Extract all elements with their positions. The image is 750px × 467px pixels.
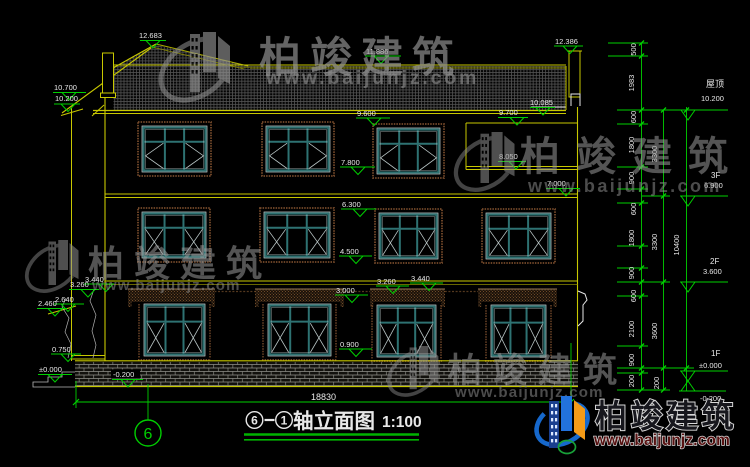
svg-text:1800: 1800 (627, 230, 636, 247)
svg-text:柏竣建筑: 柏竣建筑 (520, 135, 744, 179)
svg-text:1F: 1F (711, 349, 720, 358)
svg-text:4.500: 4.500 (340, 247, 359, 256)
svg-text:1983: 1983 (627, 75, 636, 92)
svg-text:www.baijunjz.com: www.baijunjz.com (593, 432, 730, 449)
svg-text:7.800: 7.800 (341, 158, 360, 167)
svg-text:2.460: 2.460 (38, 299, 57, 308)
svg-text:6.300: 6.300 (342, 200, 361, 209)
svg-text:12.683: 12.683 (139, 31, 162, 40)
svg-text:3.260: 3.260 (70, 280, 89, 289)
svg-text:2.640: 2.640 (55, 295, 74, 304)
svg-text:6: 6 (144, 426, 153, 443)
svg-text:200: 200 (652, 377, 661, 390)
svg-text:10.700: 10.700 (54, 83, 77, 92)
svg-text:12.386: 12.386 (555, 37, 578, 46)
svg-text:-0.200: -0.200 (113, 370, 134, 379)
svg-text:0.750: 0.750 (52, 345, 71, 354)
svg-text:600: 600 (629, 203, 638, 216)
svg-text:3.260: 3.260 (377, 277, 396, 286)
svg-text:9.600: 9.600 (357, 109, 376, 118)
svg-text:www.baijunjz.com: www.baijunjz.com (91, 277, 241, 294)
svg-text:9.700: 9.700 (499, 108, 518, 117)
svg-text:www.baijunjz.com: www.baijunjz.com (265, 67, 479, 89)
svg-text:6: 6 (251, 414, 258, 428)
svg-text:1: 1 (281, 414, 288, 428)
svg-text:3.600: 3.600 (703, 267, 722, 276)
svg-text:10.200: 10.200 (55, 94, 78, 103)
svg-text:10.085: 10.085 (530, 98, 553, 107)
svg-text:200: 200 (627, 375, 636, 388)
svg-text:10.200: 10.200 (701, 94, 724, 103)
svg-text:3300: 3300 (650, 234, 659, 251)
svg-text:±0.000: ±0.000 (39, 365, 62, 374)
svg-text:3600: 3600 (650, 323, 659, 340)
svg-text:3.440: 3.440 (411, 274, 430, 283)
svg-text:www.baijunjz.com: www.baijunjz.com (527, 176, 722, 196)
svg-text:www.baijunjz.com: www.baijunjz.com (454, 384, 604, 401)
svg-text:3.000: 3.000 (336, 286, 355, 295)
svg-text:屋顶: 屋顶 (706, 79, 724, 89)
svg-text:轴立面图: 轴立面图 (293, 409, 375, 433)
svg-text:2F: 2F (710, 257, 719, 266)
svg-text:柏竣建筑: 柏竣建筑 (595, 398, 737, 434)
svg-text:900: 900 (627, 354, 636, 367)
svg-text:2100: 2100 (627, 321, 636, 338)
svg-text:±0.000: ±0.000 (699, 361, 722, 370)
svg-text:10400: 10400 (672, 235, 681, 256)
svg-text:900: 900 (627, 267, 636, 280)
svg-text:500: 500 (629, 43, 638, 56)
svg-text:0.900: 0.900 (340, 340, 359, 349)
svg-text:600: 600 (629, 111, 638, 124)
svg-text:1:100: 1:100 (382, 414, 422, 431)
svg-text:18830: 18830 (311, 392, 336, 402)
svg-text:600: 600 (629, 290, 638, 303)
